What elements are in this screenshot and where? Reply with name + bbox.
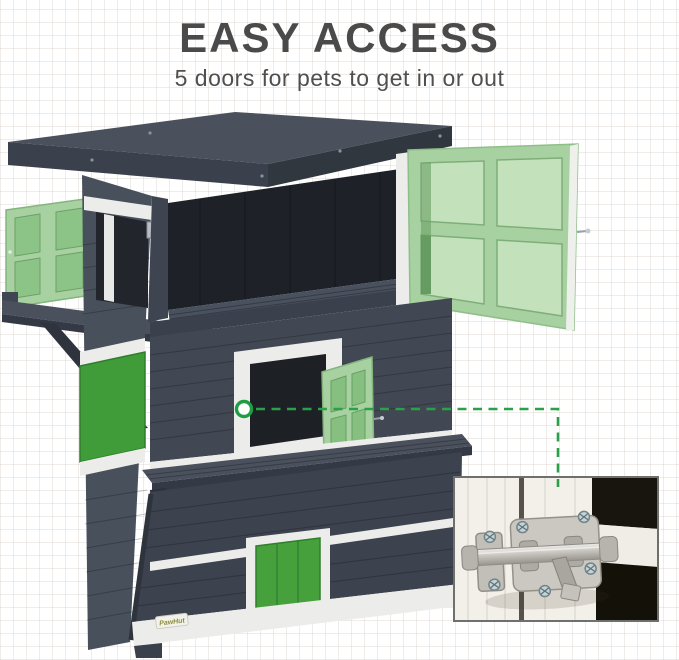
green-side-panel bbox=[80, 352, 145, 462]
door-knob bbox=[8, 250, 12, 254]
side-doorway-opening bbox=[96, 212, 148, 308]
side-door-jamb bbox=[104, 214, 114, 302]
top-left-green-door bbox=[6, 198, 92, 308]
middle-doorway-opening bbox=[250, 354, 326, 447]
dark-opening-top bbox=[592, 477, 658, 529]
page-subtitle: 5 doors for pets to get in or out bbox=[0, 65, 679, 92]
page-title: EASY ACCESS bbox=[0, 17, 679, 59]
header: EASY ACCESS 5 doors for pets to get in o… bbox=[0, 17, 679, 92]
dark-opening-bottom bbox=[596, 562, 658, 621]
cat-house-photo: PawHut bbox=[0, 0, 679, 660]
focus-ring-icon bbox=[237, 402, 252, 417]
latch-pin bbox=[586, 229, 591, 234]
latch-detail-callout bbox=[454, 477, 658, 621]
product-infographic: EASY ACCESS 5 doors for pets to get in o… bbox=[0, 0, 679, 660]
